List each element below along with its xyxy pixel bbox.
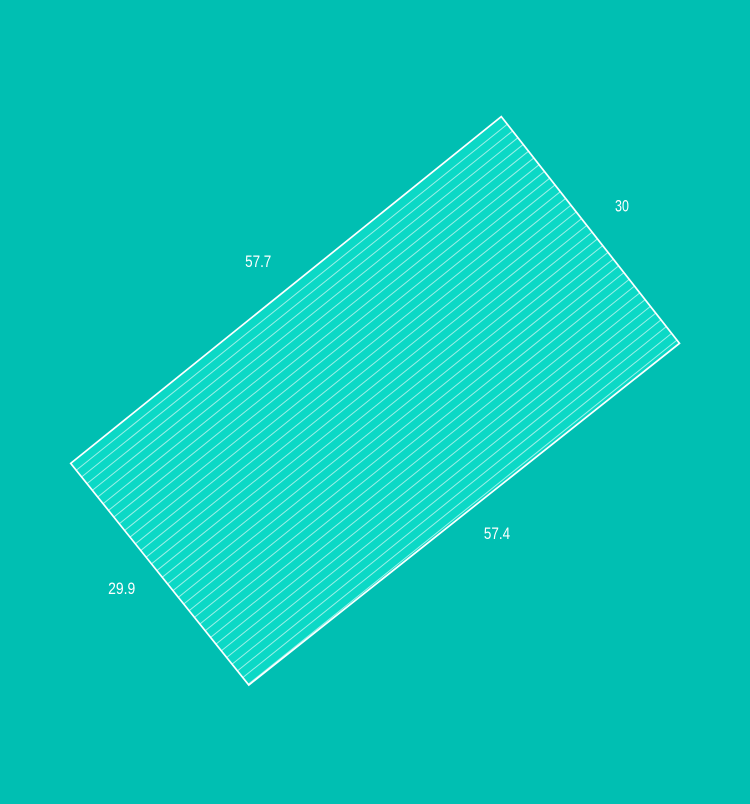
svg-text:57.4: 57.4 — [484, 524, 510, 543]
svg-text:30: 30 — [615, 197, 629, 216]
svg-text:29.9: 29.9 — [108, 579, 135, 598]
svg-text:57.7: 57.7 — [245, 252, 271, 271]
